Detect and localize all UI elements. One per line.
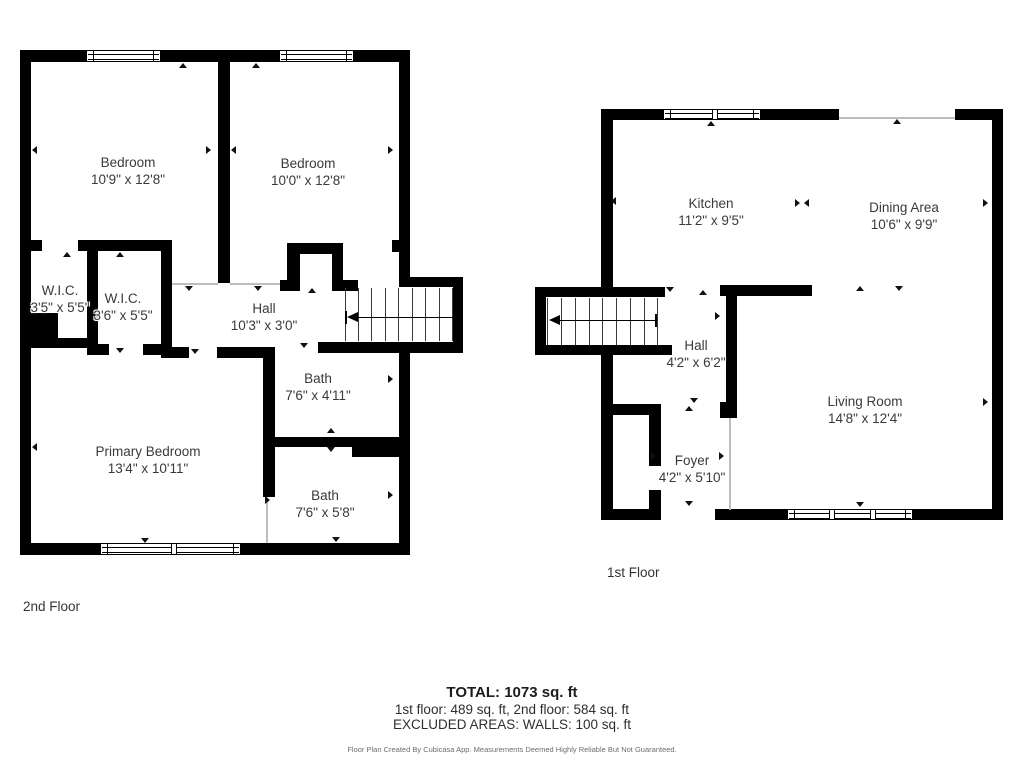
wall-marker: [983, 398, 988, 406]
wall-segment: [161, 243, 172, 355]
door-marker: [895, 286, 903, 291]
room-label-wic-mid: W.I.C. 3'6" x 5'5": [93, 290, 152, 324]
door-marker: [666, 287, 674, 292]
room-name: Primary Bedroom: [95, 443, 200, 460]
room-name: Foyer: [659, 452, 726, 469]
room-name: Hall: [666, 337, 725, 354]
area-summary: TOTAL: 1073 sq. ft 1st floor: 489 sq. ft…: [0, 684, 1024, 754]
door-marker: [63, 252, 71, 257]
room-name: Kitchen: [678, 195, 744, 212]
door-marker: [856, 286, 864, 291]
room-dims: 3'5" x 5'5": [30, 299, 89, 316]
room-dims: 10'0" x 12'8": [271, 172, 345, 189]
room-dims: 10'3" x 3'0": [231, 317, 298, 334]
room-dims: 3'6" x 5'5": [93, 307, 152, 324]
window: [663, 109, 761, 120]
room-name: Bath: [285, 370, 351, 387]
window: [86, 50, 161, 62]
second-floor-title: 2nd Floor: [23, 599, 80, 614]
room-label-hall-1f: Hall 4'2" x 6'2": [666, 337, 725, 371]
stair-direction-arrow: [551, 320, 656, 321]
wall-segment: [161, 347, 189, 358]
door-marker: [300, 343, 308, 348]
room-label-living-room: Living Room 14'8" x 12'4": [827, 393, 902, 427]
door-marker: [332, 537, 340, 542]
window: [787, 509, 913, 520]
first-floor-title: 1st Floor: [607, 565, 660, 580]
room-label-bedroom-right: Bedroom 10'0" x 12'8": [271, 155, 345, 189]
wall-marker: [804, 199, 809, 207]
door-marker: [327, 428, 335, 433]
door-marker: [685, 501, 693, 506]
room-label-bath-lower: Bath 7'6" x 5'8": [295, 487, 354, 521]
door-marker: [116, 252, 124, 257]
wall-segment: [280, 280, 300, 291]
door-marker: [651, 452, 656, 460]
wall-marker: [231, 146, 236, 154]
door-marker: [185, 286, 193, 291]
room-name: Bedroom: [271, 155, 345, 172]
room-name: Living Room: [827, 393, 902, 410]
wall-marker: [206, 146, 211, 154]
floor-plan-page: Bedroom 10'9" x 12'8" Bedroom 10'0" x 12…: [0, 0, 1024, 768]
window: [100, 543, 241, 555]
wall-segment: [453, 277, 463, 350]
room-dims: 11'2" x 9'5": [678, 212, 744, 229]
floor-areas-text: 1st floor: 489 sq. ft, 2nd floor: 584 sq…: [0, 702, 1024, 717]
door-marker: [893, 119, 901, 124]
wall-segment: [720, 402, 737, 418]
wall-segment: [612, 404, 652, 415]
room-name: Bedroom: [91, 154, 165, 171]
wall-marker: [32, 443, 37, 451]
wall-marker: [611, 197, 616, 205]
opening-line: [729, 418, 731, 510]
door-marker: [707, 121, 715, 126]
room-label-bedroom-left: Bedroom 10'9" x 12'8": [91, 154, 165, 188]
staircase: [345, 288, 453, 341]
room-dims: 13'4" x 10'11": [95, 460, 200, 477]
wall-segment: [217, 347, 263, 358]
room-label-wic-left: W.I.C. 3'5" x 5'5": [30, 282, 89, 316]
wall-segment: [537, 287, 665, 297]
room-dims: 7'6" x 4'11": [285, 387, 351, 404]
wall-marker: [388, 491, 393, 499]
room-name: W.I.C.: [30, 282, 89, 299]
wall-segment: [318, 342, 463, 353]
wall-segment: [992, 109, 1003, 520]
wall-segment: [649, 490, 661, 520]
door-marker: [265, 496, 270, 504]
wall-marker: [32, 146, 37, 154]
door-marker: [715, 312, 720, 320]
door-marker: [191, 349, 199, 354]
wall-segment: [601, 350, 613, 520]
window: [279, 50, 354, 62]
wall-segment: [20, 338, 97, 348]
room-dims: 4'2" x 6'2": [666, 354, 725, 371]
room-dims: 7'6" x 5'8": [295, 504, 354, 521]
room-label-primary-bedroom: Primary Bedroom 13'4" x 10'11": [95, 443, 200, 477]
wall-segment: [263, 347, 275, 497]
room-label-kitchen: Kitchen 11'2" x 9'5": [678, 195, 744, 229]
excluded-areas-text: EXCLUDED AREAS: WALLS: 100 sq. ft: [0, 717, 1024, 732]
door-marker: [179, 63, 187, 68]
staircase: [547, 298, 658, 345]
wall-segment: [218, 50, 230, 283]
door-marker: [699, 290, 707, 295]
wall-segment: [392, 240, 410, 252]
door-marker: [252, 63, 260, 68]
wall-segment: [30, 240, 42, 251]
wall-segment: [263, 437, 358, 447]
room-label-bath-upper: Bath 7'6" x 4'11": [285, 370, 351, 404]
wall-marker: [388, 375, 393, 383]
disclaimer-text: Floor Plan Created By Cubicasa App. Meas…: [0, 745, 1024, 754]
wall-segment: [20, 50, 31, 555]
door-marker: [856, 502, 864, 507]
door-marker: [116, 348, 124, 353]
door-marker: [685, 406, 693, 411]
wall-marker: [795, 199, 800, 207]
room-name: Hall: [231, 300, 298, 317]
wall-marker: [388, 146, 393, 154]
door-marker: [327, 447, 335, 452]
room-name: Dining Area: [869, 199, 939, 216]
room-label-hall-2f: Hall 10'3" x 3'0": [231, 300, 298, 334]
room-dims: 10'6" x 9'9": [869, 216, 939, 233]
stair-direction-arrow: [349, 317, 453, 318]
door-marker: [308, 288, 316, 293]
total-area-text: TOTAL: 1073 sq. ft: [0, 684, 1024, 702]
room-dims: 4'2" x 5'10": [659, 469, 726, 486]
room-name: W.I.C.: [93, 290, 152, 307]
wall-segment: [352, 437, 410, 457]
room-name: Bath: [295, 487, 354, 504]
wall-marker: [983, 199, 988, 207]
stair-arrow-tick: [655, 314, 657, 327]
door-marker: [690, 398, 698, 403]
room-dims: 10'9" x 12'8": [91, 171, 165, 188]
wall-segment: [726, 285, 737, 418]
door-opening-line: [172, 283, 218, 285]
wall-segment: [537, 345, 672, 355]
room-label-foyer: Foyer 4'2" x 5'10": [659, 452, 726, 486]
room-label-dining-area: Dining Area 10'6" x 9'9": [869, 199, 939, 233]
room-dims: 14'8" x 12'4": [827, 410, 902, 427]
door-opening-line: [230, 283, 280, 285]
door-marker: [254, 286, 262, 291]
door-marker: [141, 538, 149, 543]
